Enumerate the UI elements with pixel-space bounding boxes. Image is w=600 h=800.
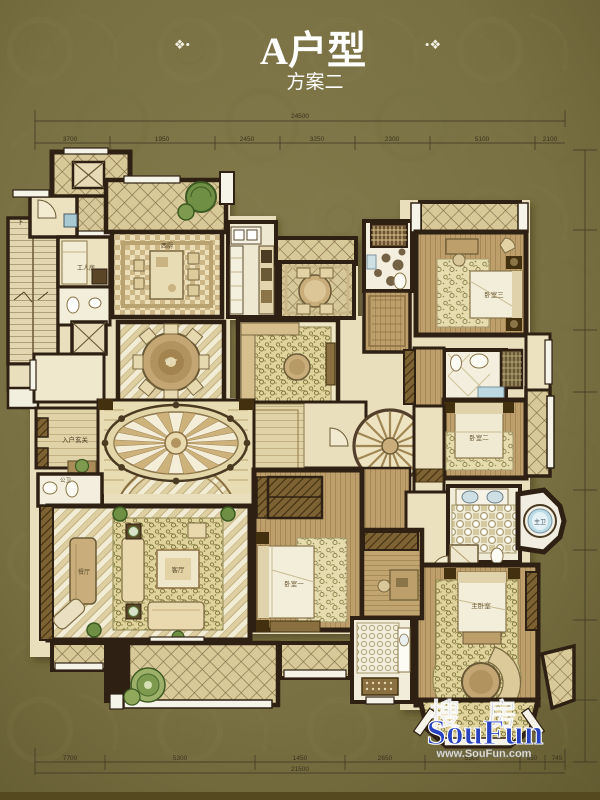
svg-text:3700: 3700 [63,136,78,143]
svg-text:•❖: •❖ [425,37,441,52]
svg-text:方案二: 方案二 [286,71,343,93]
svg-text:入户玄关: 入户玄关 [62,435,89,444]
svg-text:❖•: ❖• [174,37,190,52]
svg-text:2450: 2450 [240,136,255,143]
svg-text:主卫: 主卫 [534,518,546,526]
svg-text:7700: 7700 [63,755,78,762]
svg-text:公卫: 公卫 [60,477,72,484]
svg-text:餐厅: 餐厅 [165,357,179,366]
svg-text:2300: 2300 [385,136,400,143]
svg-text:21500: 21500 [291,766,309,773]
svg-text:24500: 24500 [291,113,309,120]
svg-text:客厅: 客厅 [172,565,186,574]
svg-text:www.SouFun.com: www.SouFun.com [436,748,532,760]
svg-text:下: 下 [17,218,24,226]
svg-text:5100: 5100 [475,136,490,143]
svg-text:5300: 5300 [173,755,188,762]
svg-text:2650: 2650 [378,755,393,762]
svg-text:卧室一: 卧室一 [284,579,304,588]
svg-text:西厨: 西厨 [161,243,173,250]
svg-text:745: 745 [552,755,563,762]
svg-text:主卧室: 主卧室 [471,601,491,610]
svg-text:1450: 1450 [293,755,308,762]
svg-text:A户型: A户型 [260,30,366,73]
svg-text:SouFun: SouFun [427,713,544,752]
svg-text:餐厅: 餐厅 [78,568,90,576]
svg-text:3250: 3250 [310,136,325,143]
svg-text:1950: 1950 [155,136,170,143]
svg-text:2100: 2100 [543,136,558,143]
svg-text:卧室三: 卧室三 [484,290,504,299]
svg-text:卧室二: 卧室二 [469,433,489,442]
